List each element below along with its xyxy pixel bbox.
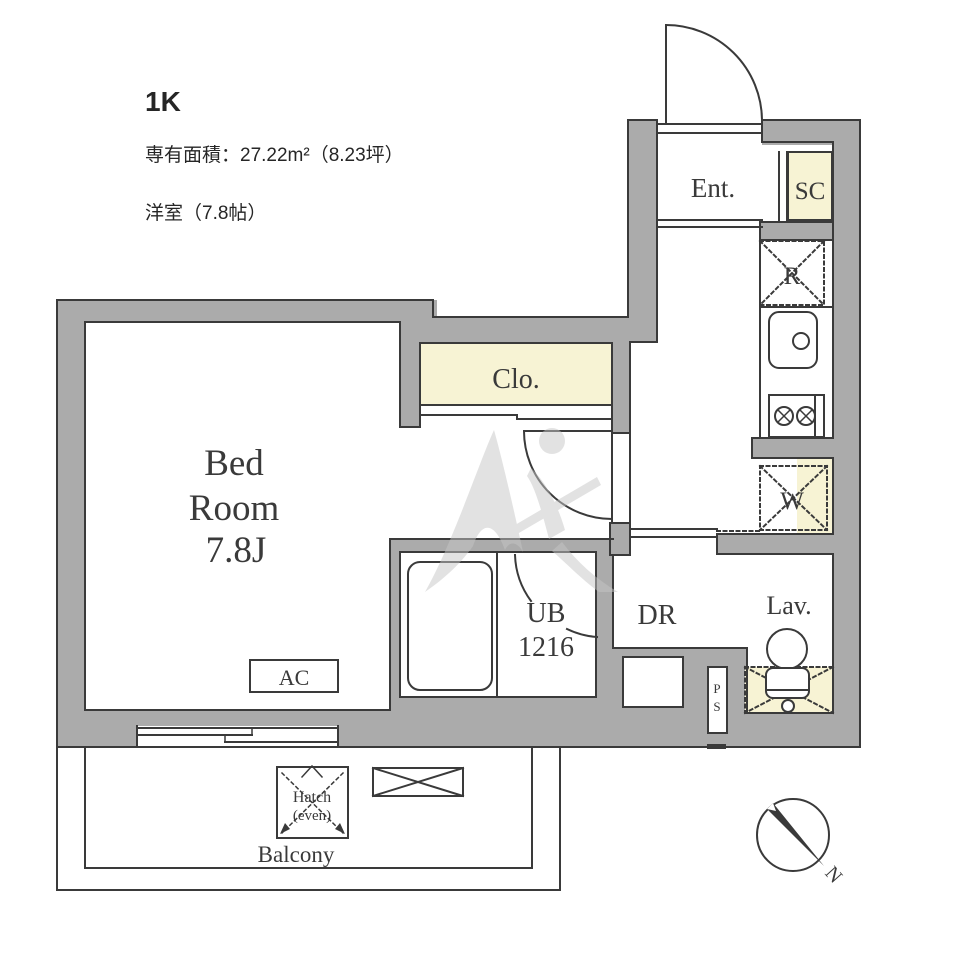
sink-faucet-icon bbox=[793, 333, 809, 349]
dressing-threshold-lines bbox=[630, 529, 717, 537]
watermark-logo bbox=[425, 428, 618, 592]
wall-bedroom-top bbox=[57, 300, 437, 322]
label-balcony: Balcony bbox=[258, 842, 335, 867]
label-washer: W bbox=[780, 488, 804, 515]
wall-corridor-west bbox=[612, 342, 630, 433]
floorplan-drawing: Ent. SC R W Clo. Bed Room 7.8J UB 1216 D… bbox=[0, 0, 957, 954]
label-lavatory: Lav. bbox=[766, 591, 811, 620]
label-hatch-2: (even) bbox=[293, 808, 331, 824]
toilet-bowl-icon bbox=[767, 629, 807, 669]
label-bedroom-3: 7.8J bbox=[206, 530, 267, 571]
header-block: 1K 専有面積：27.22m²（8.23坪） 洋室（7.8帖） bbox=[145, 86, 404, 224]
wall-closet-top bbox=[420, 317, 657, 342]
wall-bath-west bbox=[390, 539, 400, 710]
label-unit-bath-2: 1216 bbox=[518, 632, 574, 663]
label-hatch-1: Hatch bbox=[293, 789, 331, 806]
wall-right bbox=[833, 120, 860, 747]
label-unit-bath-1: UB bbox=[527, 598, 566, 629]
label-refrigerator: R bbox=[784, 263, 801, 290]
bathtub bbox=[408, 562, 492, 690]
floorplan-page: Ent. SC R W Clo. Bed Room 7.8J UB 1216 D… bbox=[0, 0, 957, 954]
label-entrance: Ent. bbox=[691, 173, 735, 203]
label-pipe-space-p: P bbox=[713, 681, 720, 696]
wall-bath-south bbox=[400, 697, 596, 710]
compass-needle-icon bbox=[767, 803, 824, 866]
room-size-text: 洋室（7.8帖） bbox=[145, 202, 266, 224]
entrance-step-lines bbox=[657, 220, 762, 227]
shoe-closet-door-lines bbox=[779, 152, 787, 220]
wall-closet-west bbox=[400, 322, 420, 427]
wall-kitchen-west bbox=[628, 120, 657, 342]
watermark-head bbox=[539, 428, 565, 454]
area-text: 専有面積：27.22m²（8.23坪） bbox=[145, 144, 404, 166]
label-air-conditioner: AC bbox=[279, 665, 310, 690]
label-closet: Clo. bbox=[492, 364, 539, 395]
wall-bath-east bbox=[596, 539, 613, 655]
label-shoe-closet: SC bbox=[795, 178, 826, 205]
label-pipe-space-s: S bbox=[713, 699, 720, 714]
wall-under-shoe-closet bbox=[760, 222, 833, 240]
toilet-tank-icon bbox=[766, 668, 809, 698]
wall-under-counter bbox=[752, 438, 833, 458]
entry-door bbox=[657, 25, 762, 142]
toilet-flush-icon bbox=[782, 700, 794, 712]
wall-lavatory-top bbox=[717, 534, 833, 554]
label-dressing-room: DR bbox=[638, 600, 677, 631]
label-bedroom-2: Room bbox=[189, 488, 280, 529]
entry-door-arc bbox=[666, 25, 762, 120]
label-compass-north: N bbox=[820, 862, 846, 887]
fixture-box-under-dressing bbox=[623, 657, 683, 707]
label-bedroom-1: Bed bbox=[204, 443, 264, 484]
closet-sliding-door-lines bbox=[420, 415, 612, 419]
wall-left bbox=[57, 300, 85, 747]
wall-vent-tick bbox=[707, 744, 726, 749]
compass bbox=[757, 799, 829, 871]
entry-opening-patch bbox=[658, 114, 761, 143]
plan-type-title: 1K bbox=[145, 86, 181, 117]
